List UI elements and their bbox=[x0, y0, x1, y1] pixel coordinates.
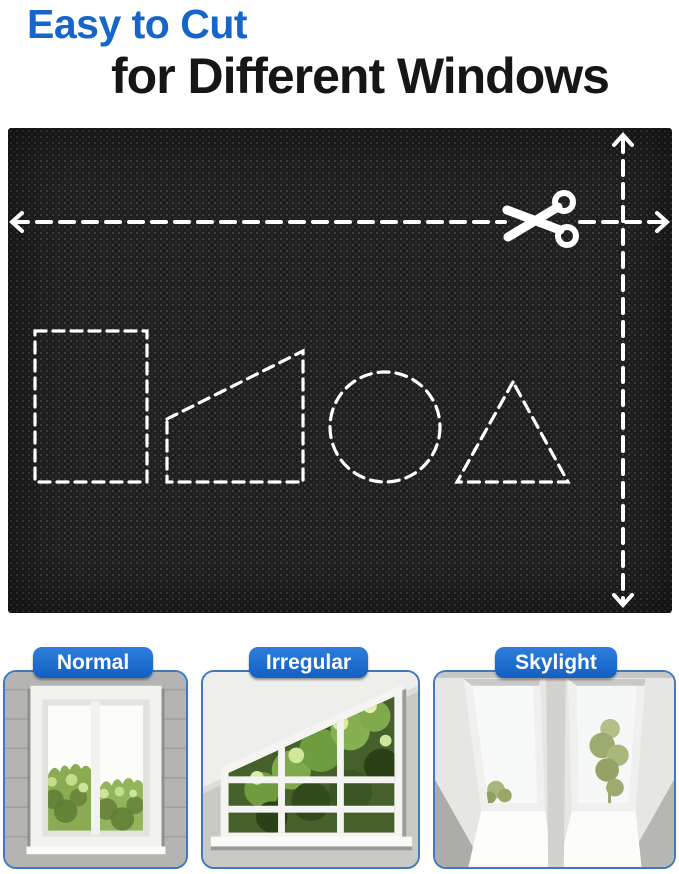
window-type-label-irregular: Irregular bbox=[249, 647, 368, 678]
cut-shape-triangle bbox=[457, 382, 568, 482]
cut-shape-rectangle bbox=[35, 331, 147, 482]
window-type-label-skylight: Skylight bbox=[495, 647, 617, 678]
vertical-dashed-cut-line bbox=[614, 135, 632, 605]
skylight-window-photo bbox=[435, 672, 674, 867]
cut-shape-trapezoid bbox=[167, 351, 303, 482]
window-card-skylight bbox=[433, 670, 676, 869]
window-card-normal bbox=[3, 670, 188, 869]
window-type-label-normal: Normal bbox=[33, 647, 153, 678]
cut-guides-overlay bbox=[8, 128, 672, 613]
fabric-panel bbox=[8, 128, 672, 613]
irregular-window-photo bbox=[203, 672, 418, 867]
normal-window-photo bbox=[5, 672, 186, 867]
product-infographic: Easy to Cut for Different Windows bbox=[0, 0, 679, 874]
title-line-1: Easy to Cut bbox=[27, 4, 247, 45]
scissors-icon bbox=[507, 193, 576, 245]
title-line-2: for Different Windows bbox=[111, 51, 609, 101]
window-card-irregular bbox=[201, 670, 420, 869]
cut-shape-circle bbox=[330, 372, 440, 482]
